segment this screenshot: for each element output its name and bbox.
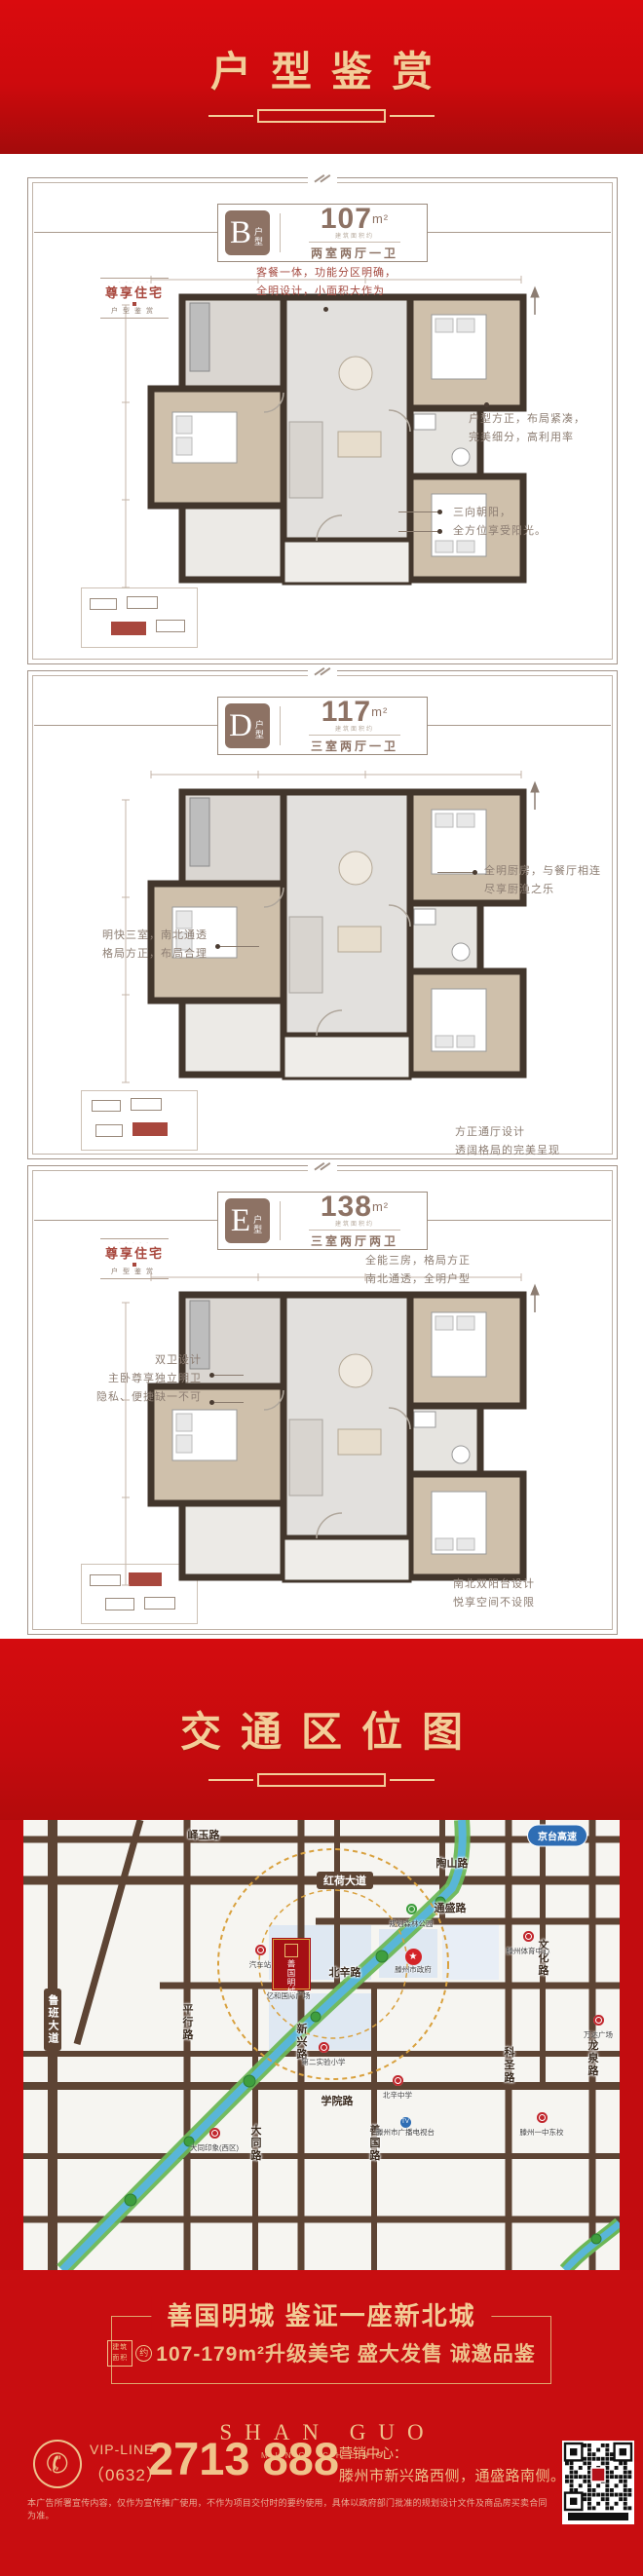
plan-letter-suffix: 户型 (254, 227, 265, 246)
plan-card-b: B 户型 107m² 建筑面积约 两室两厅一卫 客餐一体，功能分区明确，全明设计… (27, 177, 618, 664)
poi-label: 万达广场 (561, 2030, 620, 2039)
plan-header-b: B 户型 107m² 建筑面积约 两室两厅一卫 (217, 204, 428, 262)
map-poi: TV滕州市广播电视台 (368, 2110, 442, 2137)
contact-row: ✆ VIP-LINE （0632） 2713 888 营销中心： 滕州市新兴路西… (0, 2434, 643, 2496)
plan-area-caption: 建筑面积约 (288, 727, 421, 734)
building-icon (393, 2075, 403, 2086)
plan-letter-badge: E 户型 (225, 1198, 270, 1243)
poi-label: 规划森林公园 (374, 1919, 448, 1928)
map-title-band: 交通区位图 (0, 1639, 643, 1820)
disclaimer: 本广告所署宣传内容，仅作为宣传推广使用，不作为项目交付时的要约使用，具体以政府部… (27, 2496, 549, 2521)
map-poi: ★滕州市政府 (376, 1947, 450, 1974)
title-ornament (0, 1773, 643, 1787)
plan-rooms: 三室两厅一卫 (309, 735, 400, 754)
slogan-headline: 善国明城 鉴证一座新北城 (151, 2296, 491, 2335)
plan-letter: D (229, 710, 252, 742)
building-icon (537, 2112, 548, 2123)
map-poi: 大同印象(西区) (177, 2126, 251, 2152)
plan-header-d: D 户型 117m² 建筑面积约 三室两厅一卫 (217, 697, 428, 755)
plan-card-d: D 户型 117m² 建筑面积约 三室两厅一卫 明快三室，南北通透格局方正，布局… (27, 670, 618, 1159)
promo-line: 建筑 面积 约 107-179m²升级美宅 盛大发售 诚邀品鉴 (0, 2338, 643, 2368)
poster: 户型鉴赏 B 户型 107m² 建筑面积约 两室两厅一卫 客餐一体，功能分区明确… (0, 0, 643, 2576)
building-icon (209, 2128, 220, 2139)
vip-line-label: VIP-LINE (90, 2442, 154, 2457)
approx-circle: 约 (135, 2345, 152, 2362)
government-star-icon: ★ (405, 1949, 422, 1965)
floorplan-e (122, 1273, 550, 1609)
qr-code (562, 2441, 634, 2524)
map-poi: 第二实验小学 (286, 2040, 360, 2066)
plan-area-unit: m² (371, 704, 388, 719)
annotation-right: 全明厨房，与餐厅相连尽享厨渔之乐 (484, 862, 601, 899)
card-slash-ornament (308, 664, 337, 678)
road-label: 陶山路 (436, 1855, 469, 1871)
top-band: 户型鉴赏 (0, 0, 643, 154)
road-label: 鲁班大道 (44, 1989, 61, 2051)
plan-area-unit: m² (372, 1199, 389, 1214)
marketing-center-address: 滕州市新兴路西侧，通盛路南侧。 (339, 2465, 566, 2485)
plan-letter-badge: D 户型 (225, 703, 270, 748)
poi-label: 第二实验小学 (286, 2058, 360, 2066)
building-icon (593, 2015, 604, 2026)
plan-area-caption: 建筑面积约 (288, 1222, 421, 1229)
park-icon (406, 1904, 417, 1914)
road-label: 龙泉路 (585, 2040, 600, 2078)
poi-label: 滕州体育中心 (491, 1947, 565, 1955)
annotation-bottom-right: 南北双阳台设计悦享空间不设限 (453, 1575, 535, 1612)
project-name: 善国明城 (286, 1959, 296, 1996)
annotation-bottom-right: 三向朝阳，全方位享受阳光。 (453, 504, 547, 541)
map-poi: 滕州体育中心 (491, 1929, 565, 1955)
building-icon (523, 1931, 534, 1942)
plan-letter-suffix: 户型 (255, 720, 266, 739)
road-label: 北辛路 (329, 1964, 361, 1980)
poi-label: 滕州一中东校 (505, 2128, 579, 2137)
plan-area-unit: m² (372, 211, 389, 226)
tv-station-icon: TV (400, 2117, 411, 2128)
annotation-top: 客餐一体，功能分区明确，全明设计，小面积大作为 (256, 264, 397, 301)
map-poi: 滕州一中东校 (505, 2110, 579, 2137)
plan-letter-badge: B 户型 (225, 210, 270, 255)
section-title-map: 交通区位图 (0, 1699, 643, 1759)
title-ornament (0, 109, 643, 123)
plan-letter: E (231, 1205, 250, 1237)
building-icon (319, 2042, 329, 2053)
stamp-premium-residence: · · · · · 尊享住宅 户型鉴赏 (100, 276, 169, 321)
plan-area: 117 (321, 696, 371, 728)
plan-header-e: E 户型 138m² 建筑面积约 三室两厅两卫 (217, 1192, 428, 1250)
sales-subline: 107-179m²升级美宅 盛大发售 诚邀品鉴 (156, 2338, 535, 2368)
poi-label: 滕州市广播电视台 (368, 2128, 442, 2137)
marketing-center-label: 营销中心： (339, 2443, 407, 2463)
road-label: 峄玉路 (188, 1827, 220, 1842)
plan-card-e: E 户型 138m² 建筑面积约 三室两厅两卫 全能三房，格局方正南北通透，全明… (27, 1165, 618, 1635)
plan-letter: B (230, 217, 251, 249)
map-poi: 北辛中学 (360, 2073, 435, 2100)
plan-letter-suffix: 户型 (253, 1215, 264, 1234)
plan-area: 138 (321, 1191, 372, 1223)
annotation-bottom-right: 方正通厅设计透阔格局的完美呈现 (455, 1123, 560, 1160)
map-poi: 万达广场 (561, 2013, 620, 2039)
plan-area-caption: 建筑面积约 (288, 234, 421, 241)
annotation-left: 双卫设计主卧尊享独立明卫隐私、便捷缺一不可 (57, 1351, 202, 1407)
area-seal: 建筑 面积 (107, 2340, 132, 2367)
annotation-left: 明快三室，南北通透格局方正，布局合理 (77, 927, 208, 964)
plan-rooms: 两室两厅一卫 (309, 242, 400, 261)
poi-label: 大同印象(西区) (177, 2143, 251, 2152)
highway-badge: 京台高速 (527, 1825, 587, 1847)
plan-rooms: 三室两厅两卫 (309, 1230, 400, 1249)
annotation-right: 户型方正，布局紧凑，完美细分，高利用率 (469, 410, 586, 447)
poi-label: 滕州市政府 (376, 1965, 450, 1974)
annotation-right: 全能三房，格局方正南北通透，全明户型 (365, 1252, 471, 1289)
plan-area: 107 (321, 203, 372, 235)
road-label: 科圣路 (501, 2047, 516, 2085)
card-slash-ornament (308, 1159, 337, 1173)
card-slash-ornament (308, 171, 337, 185)
stamp-premium-residence: · · · · · 尊享住宅 户型鉴赏 (100, 1236, 169, 1281)
section-title-huxing: 户型鉴赏 (0, 39, 643, 98)
project-marker: 善国明城 (273, 1939, 310, 1989)
road-label: 学院路 (321, 2093, 354, 2108)
poi-label: 北辛中学 (360, 2091, 435, 2100)
project-emblem (284, 1944, 298, 1957)
road-label: 红荷大道 (317, 1872, 373, 1889)
phone-icon: ✆ (28, 2435, 86, 2492)
road-label: 平行路 (179, 2004, 195, 2042)
location-map: 峄玉路红荷大道陶山路通盛路北辛路学院路平行路鲁班大道大同路新兴路善国路科圣路文化… (23, 1820, 620, 2270)
map-poi: 规划森林公园 (374, 1902, 448, 1928)
building-icon (255, 1945, 266, 1955)
phone-number: 2713 888 (148, 2432, 339, 2485)
